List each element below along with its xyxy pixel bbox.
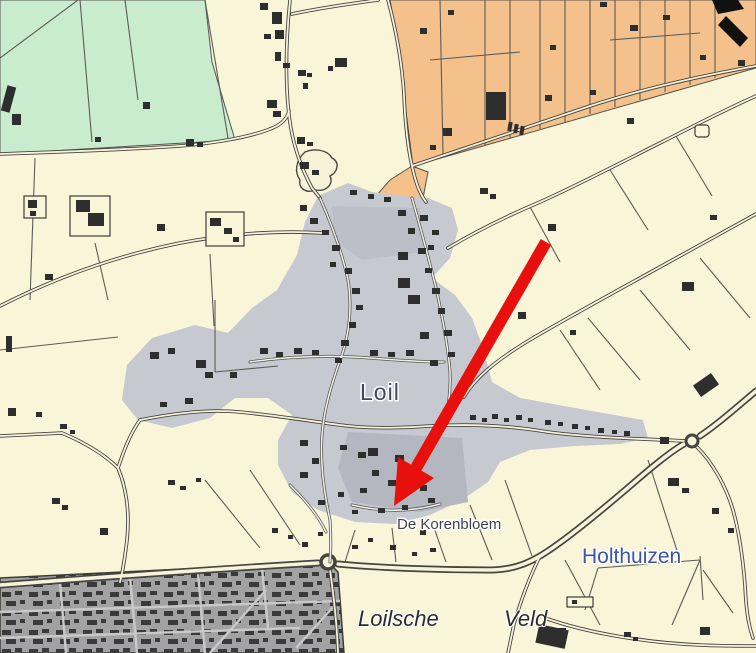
- map-canvas: Loil De Korenbloem Holthuizen Loilsche V…: [0, 0, 756, 653]
- street-label-korenbloem: De Korenbloem: [397, 516, 501, 533]
- roundabout-east: [686, 435, 698, 447]
- field-label-loilsche: Loilsche: [358, 606, 439, 631]
- roundabout-west: [321, 555, 335, 569]
- village-label-loil: Loil: [360, 379, 400, 405]
- field-label-veld: Veld: [504, 606, 548, 631]
- hamlet-label-holthuizen: Holthuizen: [582, 545, 681, 568]
- green-farmland-zone: [0, 0, 235, 154]
